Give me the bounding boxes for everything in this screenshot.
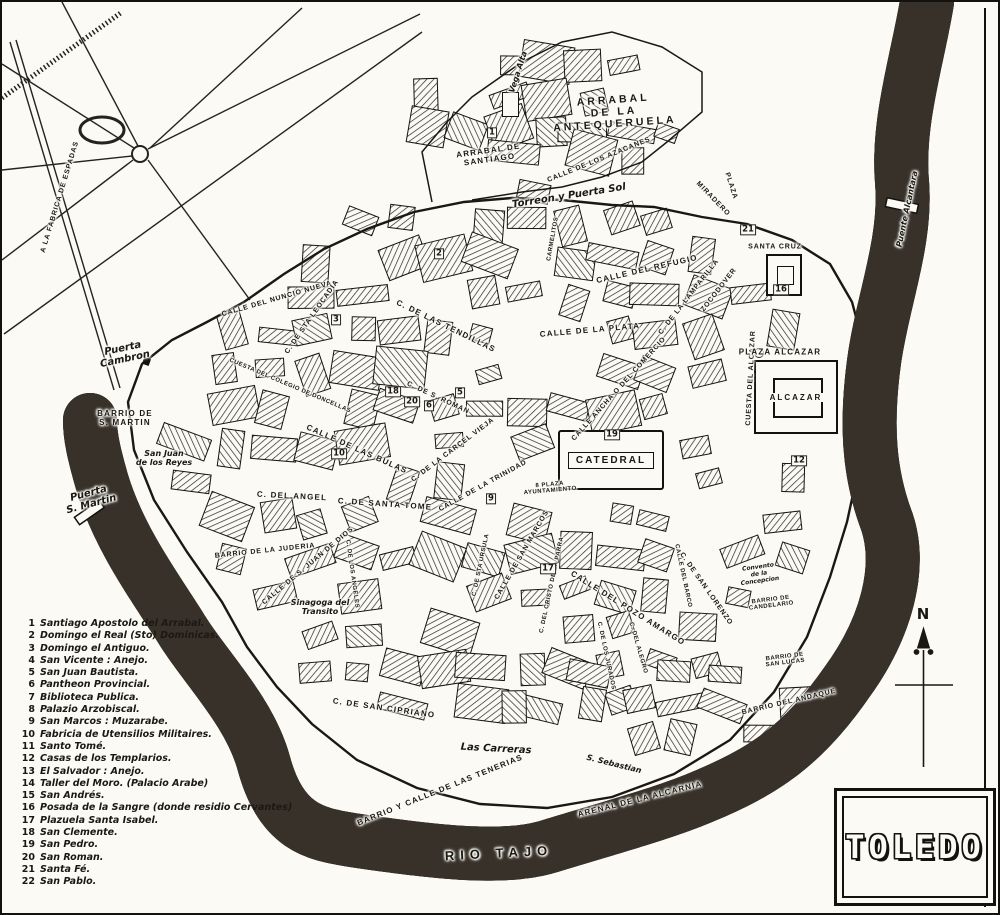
city-block	[386, 465, 419, 507]
city-block	[763, 511, 802, 534]
legend-item: 9San Marcos : Muzarabe.	[18, 716, 310, 728]
city-block	[467, 275, 500, 308]
legend-item-text: Biblioteca Publica.	[40, 692, 139, 703]
legend-item-number: 9	[18, 716, 35, 727]
city-block	[607, 55, 640, 75]
city-block	[639, 394, 667, 420]
city-block	[521, 78, 572, 121]
legend-item: 7Biblioteca Publica.	[18, 692, 310, 704]
legend-item-text: Palazio Arzobiscal.	[40, 704, 140, 715]
city-block	[641, 578, 669, 613]
city-block	[629, 283, 679, 306]
legend-item-text: Domingo el Real (Sto) Dominicas.	[40, 630, 219, 641]
city-block	[606, 611, 635, 639]
city-block	[373, 388, 420, 423]
city-block	[352, 317, 376, 341]
legend-item-number: 16	[18, 802, 35, 813]
city-block	[212, 353, 238, 385]
legend-item-number: 12	[18, 753, 35, 764]
legend-item: 5San Juan Bautista.	[18, 667, 310, 679]
city-block	[720, 535, 765, 568]
legend-item-text: Fabricia de Utensilios Militaires.	[40, 729, 212, 740]
city-block	[217, 428, 245, 469]
city-block	[627, 721, 660, 755]
city-block	[377, 316, 421, 345]
map-frame-line	[984, 8, 986, 907]
city-block	[636, 510, 669, 532]
legend-item: 6Pantheon Provincial.	[18, 679, 310, 691]
city-block	[475, 364, 501, 384]
legend-item-number: 5	[18, 667, 35, 678]
legend-item-text: Santo Tomé.	[40, 741, 106, 752]
legend-item-text: Casas de los Templarios.	[40, 753, 172, 764]
legend-item: 11Santo Tomé.	[18, 741, 310, 753]
legend-item-number: 10	[18, 729, 35, 740]
city-block	[255, 358, 285, 378]
legend-item-text: San Andrés.	[40, 790, 105, 801]
city-block	[199, 491, 254, 541]
city-block	[683, 314, 725, 360]
city-block	[292, 313, 332, 345]
legend-item: 17Plazuela Santa Isabel.	[18, 815, 310, 827]
city-block	[504, 533, 559, 574]
legend-item-text: Posada de la Sangre (donde residio Cerva…	[40, 802, 292, 813]
legend-item-text: Pantheon Provincial.	[40, 679, 150, 690]
city-block	[424, 319, 453, 355]
city-block	[253, 581, 298, 610]
legend-item-text: San Roman.	[40, 852, 103, 863]
city-block	[696, 468, 723, 489]
legend-item-text: El Salvador : Anejo.	[40, 766, 145, 777]
city-block	[657, 660, 691, 683]
city-block	[157, 423, 212, 461]
city-block	[301, 245, 330, 283]
city-block	[511, 424, 555, 461]
legend: 1Santiago Apostolo del Arrabal.2Domingo …	[18, 618, 310, 889]
city-block	[782, 463, 805, 492]
city-block	[564, 49, 602, 82]
legend-item-text: San Marcos : Muzarabe.	[40, 716, 168, 727]
title-box-inner: TOLEDO	[842, 796, 988, 898]
toledo-map: CATEDRAL ALCAZAR A LA FABRICA DE ESPADAS…	[0, 0, 1000, 915]
city-block	[578, 686, 606, 721]
city-block	[708, 665, 742, 683]
legend-item: 3Domingo el Antiguo.	[18, 643, 310, 655]
city-block	[507, 398, 547, 426]
legend-item-text: San Pedro.	[40, 839, 98, 850]
legend-item-number: 14	[18, 778, 35, 789]
city-block	[563, 615, 595, 644]
city-block	[586, 390, 642, 436]
city-block	[688, 236, 715, 274]
city-block	[607, 316, 635, 344]
city-block	[521, 589, 549, 606]
city-block	[251, 435, 298, 462]
santa-cruz-building	[766, 254, 802, 296]
city-block	[520, 653, 545, 685]
legend-item: 19San Pedro.	[18, 839, 310, 851]
city-block	[466, 401, 502, 416]
city-block	[455, 652, 506, 680]
legend-item-number: 2	[18, 630, 35, 641]
city-block	[295, 353, 331, 396]
city-block	[610, 503, 634, 525]
legend-item: 13El Salvador : Anejo.	[18, 766, 310, 778]
legend-item-text: Santiago Apostolo del Arrabal.	[40, 618, 204, 629]
legend-item: 22San Pablo.	[18, 876, 310, 888]
legend-item-number: 8	[18, 704, 35, 715]
city-block	[580, 88, 608, 116]
city-block	[502, 691, 526, 724]
city-block	[641, 208, 673, 235]
city-block	[334, 423, 390, 465]
catedral-label: CATEDRAL	[568, 452, 654, 469]
city-block	[467, 573, 512, 612]
city-block	[594, 580, 636, 614]
title-box: TOLEDO	[834, 788, 996, 906]
legend-item-text: Domingo el Antiguo.	[40, 643, 150, 654]
legend-item-number: 7	[18, 692, 35, 703]
city-block	[217, 310, 249, 350]
city-block	[767, 309, 800, 350]
city-block	[338, 579, 382, 614]
city-block	[435, 432, 464, 448]
city-block	[505, 281, 542, 302]
legend-item-number: 15	[18, 790, 35, 801]
city-block	[345, 662, 369, 681]
catedral-building: CATEDRAL	[558, 430, 664, 490]
legend-item: 12Casas de los Templarios.	[18, 753, 310, 765]
city-block	[546, 393, 590, 421]
city-block	[260, 498, 296, 533]
legend-item: 18San Clemente.	[18, 827, 310, 839]
puerta-sol-tower	[502, 92, 519, 117]
city-block	[258, 327, 298, 346]
city-block	[461, 543, 505, 577]
city-block	[420, 497, 476, 535]
city-block	[688, 359, 726, 388]
city-block	[697, 688, 747, 724]
legend-item: 16Posada de la Sangre (donde residio Cer…	[18, 802, 310, 814]
legend-item-number: 1	[18, 618, 35, 629]
city-block	[434, 462, 465, 501]
city-block	[775, 542, 810, 574]
map-title: TOLEDO	[845, 828, 985, 866]
legend-item-number: 4	[18, 655, 35, 666]
city-block	[429, 394, 460, 421]
legend-item-text: Plazuela Santa Isabel.	[40, 815, 158, 826]
legend-item: 21Santa Fé.	[18, 864, 310, 876]
legend-item-text: San Juan Bautista.	[40, 667, 139, 678]
legend-item-text: Santa Fé.	[40, 864, 90, 875]
legend-item-text: San Pablo.	[40, 876, 96, 887]
legend-item-number: 19	[18, 839, 35, 850]
city-block	[288, 287, 334, 309]
city-block	[634, 355, 676, 392]
santa-cruz-courtyard	[777, 266, 794, 285]
city-block	[334, 533, 379, 570]
legend-item-number: 21	[18, 864, 35, 875]
city-block	[622, 148, 644, 174]
compass-north-label: N	[917, 605, 930, 623]
legend-item-text: San Vicente : Anejo.	[40, 655, 148, 666]
plaza-alcazar-marker	[754, 348, 764, 358]
legend-item-number: 22	[18, 876, 35, 887]
city-block	[559, 576, 590, 599]
city-block	[554, 205, 588, 247]
legend-item: 8Palazio Arzobiscal.	[18, 704, 310, 716]
city-block	[296, 509, 327, 540]
city-block	[373, 346, 428, 389]
city-block	[294, 432, 340, 470]
legend-item-number: 17	[18, 815, 35, 826]
legend-item-number: 13	[18, 766, 35, 777]
legend-item: 10Fabricia de Utensilios Militaires.	[18, 729, 310, 741]
legend-item-number: 11	[18, 741, 35, 752]
legend-item-number: 3	[18, 643, 35, 654]
legend-item: 15San Andrés.	[18, 790, 310, 802]
city-block	[678, 612, 716, 641]
legend-item-text: San Clemente.	[40, 827, 118, 838]
alcazar-label: ALCAZAR	[768, 393, 825, 402]
city-block	[664, 719, 697, 756]
compass-needle	[895, 628, 953, 767]
city-block	[596, 545, 646, 571]
city-block	[507, 207, 546, 228]
city-block	[469, 324, 493, 345]
city-block	[726, 587, 751, 608]
city-block	[632, 319, 678, 349]
city-block	[560, 531, 593, 569]
city-block	[639, 241, 674, 275]
city-block	[487, 140, 541, 165]
legend-item: 1Santiago Apostolo del Arrabal.	[18, 618, 310, 630]
legend-item: 4San Vicente : Anejo.	[18, 655, 310, 667]
legend-item-text: Taller del Moro. (Palacio Arabe)	[40, 778, 208, 789]
legend-item-number: 6	[18, 679, 35, 690]
city-block	[420, 608, 479, 658]
city-block	[654, 122, 680, 143]
city-block	[255, 390, 290, 429]
legend-item: 2Domingo el Real (Sto) Dominicas.	[18, 630, 310, 642]
legend-item: 20San Roman.	[18, 852, 310, 864]
city-block	[216, 543, 246, 574]
city-block	[285, 543, 336, 578]
legend-item-number: 18	[18, 827, 35, 838]
city-block	[559, 284, 590, 321]
city-block	[336, 285, 389, 307]
legend-item: 14Taller del Moro. (Palacio Arabe)	[18, 778, 310, 790]
city-block	[680, 435, 712, 459]
legend-item-number: 20	[18, 852, 35, 863]
city-block	[683, 275, 733, 319]
city-block	[341, 496, 378, 532]
city-block	[377, 692, 428, 720]
city-block	[207, 385, 260, 425]
city-block	[171, 470, 211, 493]
city-block	[454, 683, 509, 723]
city-block	[409, 531, 466, 582]
alcazar-building: ALCAZAR	[754, 360, 838, 434]
city-block	[345, 624, 382, 648]
